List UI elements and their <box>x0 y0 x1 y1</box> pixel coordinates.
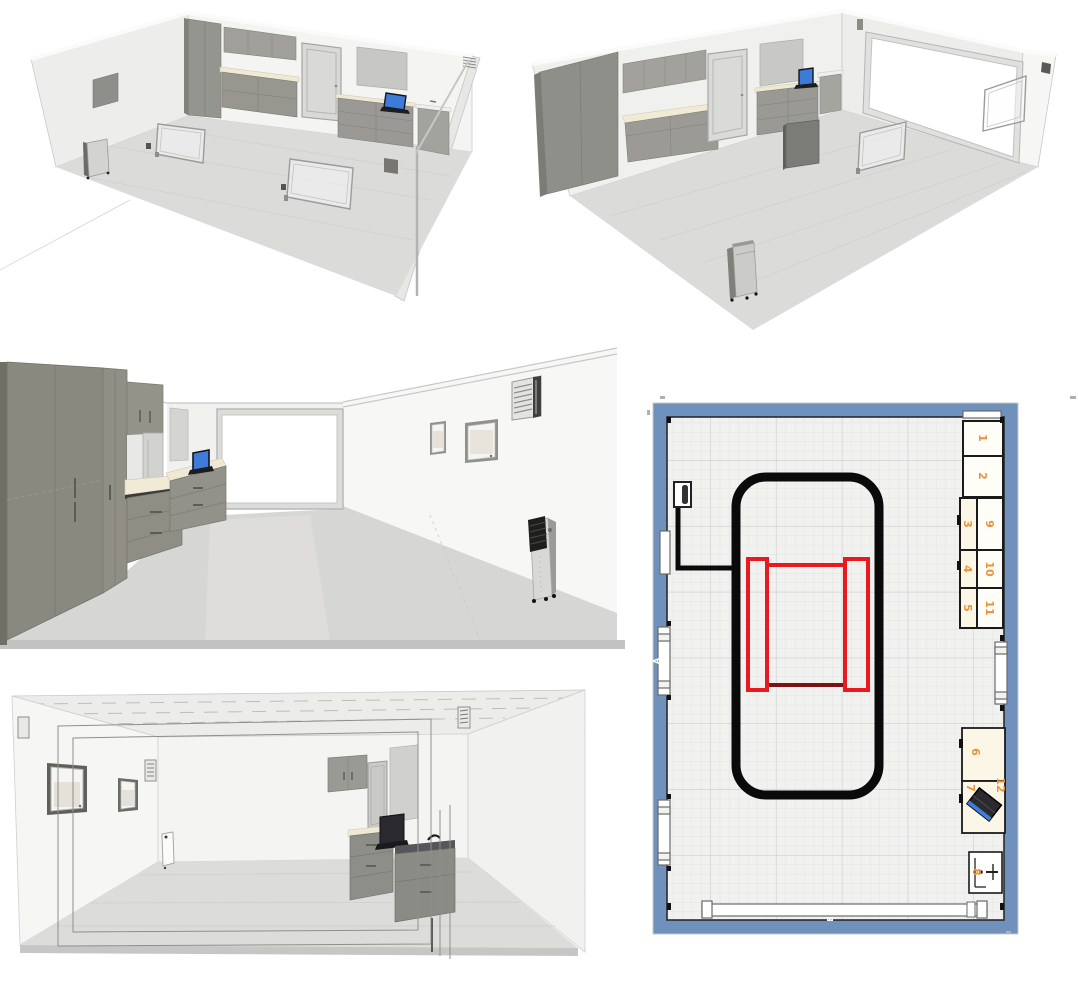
garage-door-opening <box>217 409 343 509</box>
render-aerial-front-right-canvas <box>520 0 1078 330</box>
wall-board <box>170 408 188 461</box>
label-12: 12 <box>994 777 1007 792</box>
wall-board <box>357 47 407 90</box>
laptop-dark <box>375 814 409 850</box>
plan-grid-major <box>667 417 1004 920</box>
wall-window-2 <box>465 419 498 463</box>
marker-door-e: E <box>826 916 835 921</box>
label-2: 2 <box>976 472 989 480</box>
label-8: 8 <box>970 868 983 876</box>
tall-cabinet-2 <box>103 368 127 593</box>
render-aerial-front-right <box>520 0 1078 330</box>
sink-unit <box>818 70 843 114</box>
floor-plan-canvas: 1 2 3 9 4 10 5 11 6 12 7 8 A E <box>645 395 1020 940</box>
ruler-tick-top-right <box>1070 396 1076 399</box>
label-10: 10 <box>983 561 996 577</box>
plan-wall-device <box>674 482 691 507</box>
label-6: 6 <box>969 748 982 756</box>
plan-garage-door <box>702 901 987 918</box>
floor-dot-2 <box>281 184 286 190</box>
wall-vent-right <box>1041 62 1051 74</box>
floor-dot-1 <box>146 143 151 149</box>
portable-ac <box>727 240 758 302</box>
plan-box-6 <box>962 728 1005 781</box>
floorplanner-montage: { "plan": { "labels": { "b1": "1", "b2":… <box>0 0 1078 990</box>
render-interior-toward-garage-canvas <box>0 330 640 660</box>
render-aerial-front-left <box>0 0 539 330</box>
render-interior-through-glass <box>0 660 640 990</box>
floor-plan: 1 2 3 9 4 10 5 11 6 12 7 8 A E <box>645 395 1020 940</box>
laptop-screen <box>384 93 406 110</box>
label-3: 3 <box>961 520 974 528</box>
label-1: 1 <box>976 434 989 442</box>
label-9: 9 <box>983 520 996 528</box>
label-7: 7 <box>964 784 977 792</box>
render-aerial-front-left-canvas <box>0 0 539 330</box>
vent-top-left <box>18 717 29 738</box>
tall-cabinet <box>184 18 221 118</box>
wall-vent-back <box>857 19 863 30</box>
ac-wall-unit <box>512 376 541 420</box>
tall-cabinet <box>534 52 618 197</box>
wall-board <box>390 745 418 822</box>
floor-front-band <box>0 640 625 649</box>
wall-cabinets <box>328 755 367 792</box>
door <box>302 43 341 121</box>
sink-unit <box>416 101 451 155</box>
label-5: 5 <box>961 604 974 612</box>
label-11: 11 <box>983 600 996 615</box>
marker-window-a: A <box>652 657 661 664</box>
back-wall <box>158 734 468 862</box>
wall-board <box>760 39 803 86</box>
vent-top-right <box>458 707 470 728</box>
leaning-panel <box>162 832 174 869</box>
window-left-2 <box>118 778 138 812</box>
fan-dial <box>548 528 552 532</box>
window-left-1 <box>47 763 87 815</box>
wall-cabinet-upper <box>127 382 163 435</box>
vent-mid-wall <box>145 760 156 781</box>
render-interior-toward-garage <box>0 330 640 660</box>
plan-window-left-upper <box>660 531 670 574</box>
label-4: 4 <box>961 565 974 573</box>
door <box>708 49 747 142</box>
wall-window-1 <box>430 421 446 455</box>
plan-window-top <box>963 411 1001 418</box>
laptop-screen <box>799 68 813 86</box>
floor-light-strip <box>205 515 330 640</box>
floor-square <box>384 158 398 174</box>
floor-screen <box>783 120 819 170</box>
render-interior-through-glass-canvas <box>0 660 640 990</box>
